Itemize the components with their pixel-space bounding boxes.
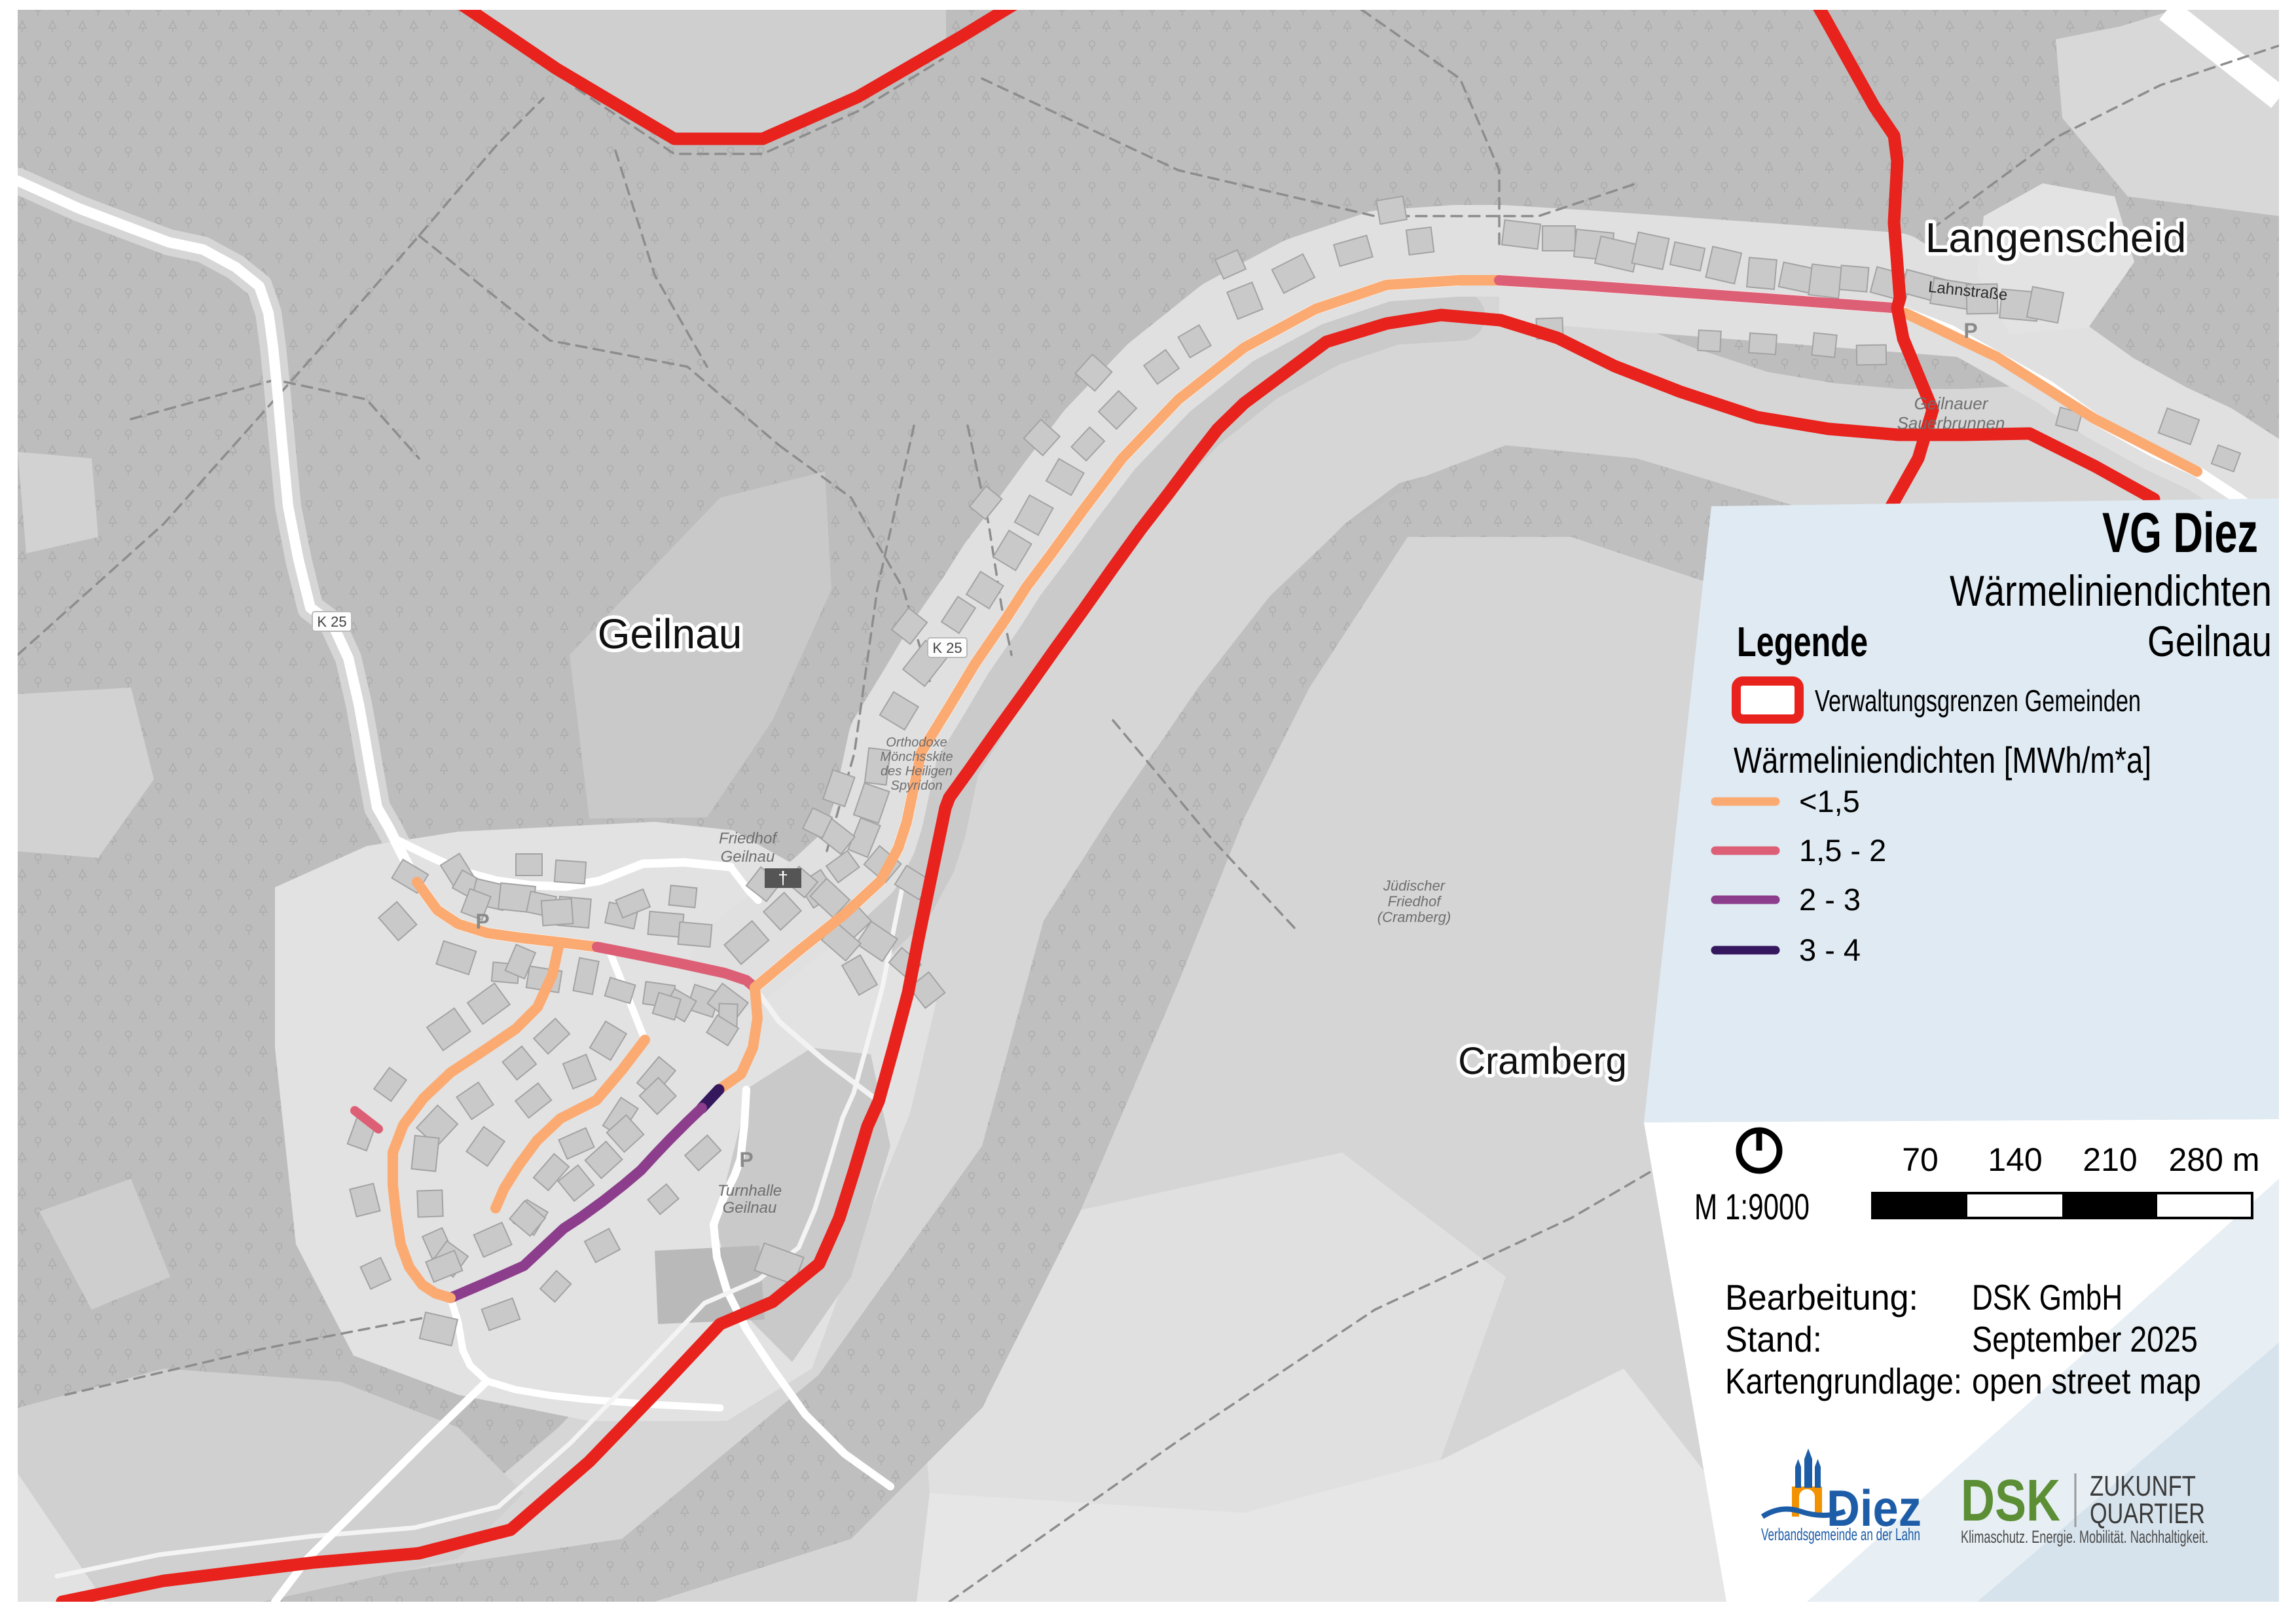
svg-text:Geilnau: Geilnau	[2147, 617, 2272, 665]
svg-text:Orthodoxe: Orthodoxe	[886, 735, 947, 750]
svg-text:Cramberg: Cramberg	[1458, 1040, 1627, 1082]
svg-text:3 - 4: 3 - 4	[1799, 932, 1861, 967]
svg-text:280 m: 280 m	[2169, 1141, 2260, 1178]
svg-text:Geilnauer: Geilnauer	[1914, 394, 1989, 413]
svg-text:Verbandsgemeinde an der Lahn: Verbandsgemeinde an der Lahn	[1761, 1524, 1920, 1544]
svg-text:Geilnau: Geilnau	[721, 848, 775, 866]
svg-text:Turnhalle: Turnhalle	[718, 1182, 782, 1200]
svg-text:P: P	[475, 910, 489, 933]
svg-text:Geilnau: Geilnau	[723, 1199, 777, 1217]
svg-text:QUARTIER: QUARTIER	[2090, 1498, 2205, 1530]
svg-text:des Heiligen: des Heiligen	[881, 764, 953, 779]
svg-text:2 - 3: 2 - 3	[1799, 882, 1861, 917]
svg-text:140: 140	[1988, 1141, 2042, 1178]
svg-text:Bearbeitung:: Bearbeitung:	[1725, 1277, 1918, 1318]
svg-text:Wärmeliniendichten: Wärmeliniendichten	[1950, 566, 2272, 615]
svg-text:Mönchsskite: Mönchsskite	[880, 750, 953, 764]
svg-text:70: 70	[1902, 1141, 1939, 1178]
svg-text:(Cramberg): (Cramberg)	[1377, 909, 1451, 925]
svg-text:Langenscheid: Langenscheid	[1925, 214, 2187, 261]
svg-text:DSK GmbH: DSK GmbH	[1972, 1277, 2123, 1318]
svg-text:Wärmeliniendichten [MWh/m*a]: Wärmeliniendichten [MWh/m*a]	[1734, 739, 2151, 781]
svg-text:Spyridon: Spyridon	[891, 779, 943, 793]
svg-text:†: †	[778, 868, 788, 888]
svg-text:September 2025: September 2025	[1972, 1319, 2198, 1359]
svg-text:Klimaschutz. Energie. Mobilitä: Klimaschutz. Energie. Mobilität. Nachhal…	[1961, 1527, 2208, 1547]
svg-text:Friedhof: Friedhof	[1388, 893, 1443, 910]
svg-text:Kartengrundlage:: Kartengrundlage:	[1725, 1361, 1962, 1401]
svg-text:Geilnau: Geilnau	[598, 610, 742, 657]
svg-text:Sauerbrunnen: Sauerbrunnen	[1897, 413, 2005, 433]
svg-text:210: 210	[2083, 1141, 2137, 1178]
svg-text:K 25: K 25	[932, 640, 962, 656]
svg-text:Friedhof: Friedhof	[719, 830, 778, 847]
svg-text:Verwaltungsgrenzen Gemeinden: Verwaltungsgrenzen Gemeinden	[1815, 684, 2141, 718]
svg-text:P: P	[1963, 319, 1977, 342]
svg-text:M 1:9000: M 1:9000	[1694, 1186, 1810, 1227]
svg-text:<1,5: <1,5	[1799, 784, 1860, 819]
svg-text:K 25: K 25	[317, 614, 346, 630]
svg-text:Legende: Legende	[1737, 618, 1868, 665]
svg-text:P: P	[739, 1148, 753, 1172]
svg-text:1,5 - 2: 1,5 - 2	[1799, 833, 1886, 868]
svg-text:Stand:: Stand:	[1725, 1319, 1822, 1359]
svg-text:VG Diez: VG Diez	[2102, 502, 2258, 564]
svg-text:Jüdischer: Jüdischer	[1383, 877, 1446, 894]
svg-text:DSK: DSK	[1961, 1468, 2060, 1534]
svg-text:open street map: open street map	[1972, 1361, 2201, 1401]
